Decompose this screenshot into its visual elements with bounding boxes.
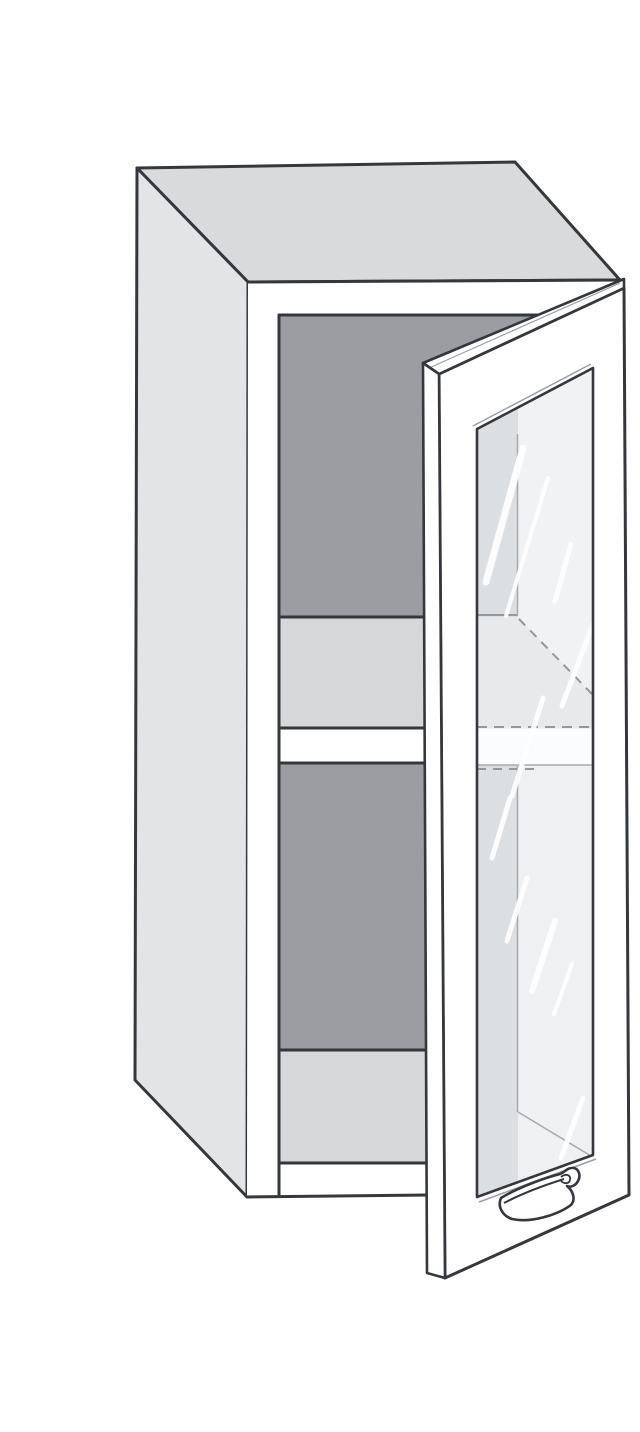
front-top-edge [248, 280, 620, 282]
front-bottom-edge [247, 1195, 430, 1197]
cabinet-illustration [40, 16, 640, 1416]
glass-door [423, 279, 629, 1278]
glass-view-back-wall-lower [477, 765, 518, 1197]
glass-pane [470, 361, 600, 1206]
glass-view-back-wall-upper [477, 407, 518, 617]
cabinet-side-panel [135, 168, 248, 1197]
glass-view-shelf-edge [477, 729, 593, 765]
cabinet-drawing [40, 16, 640, 1416]
